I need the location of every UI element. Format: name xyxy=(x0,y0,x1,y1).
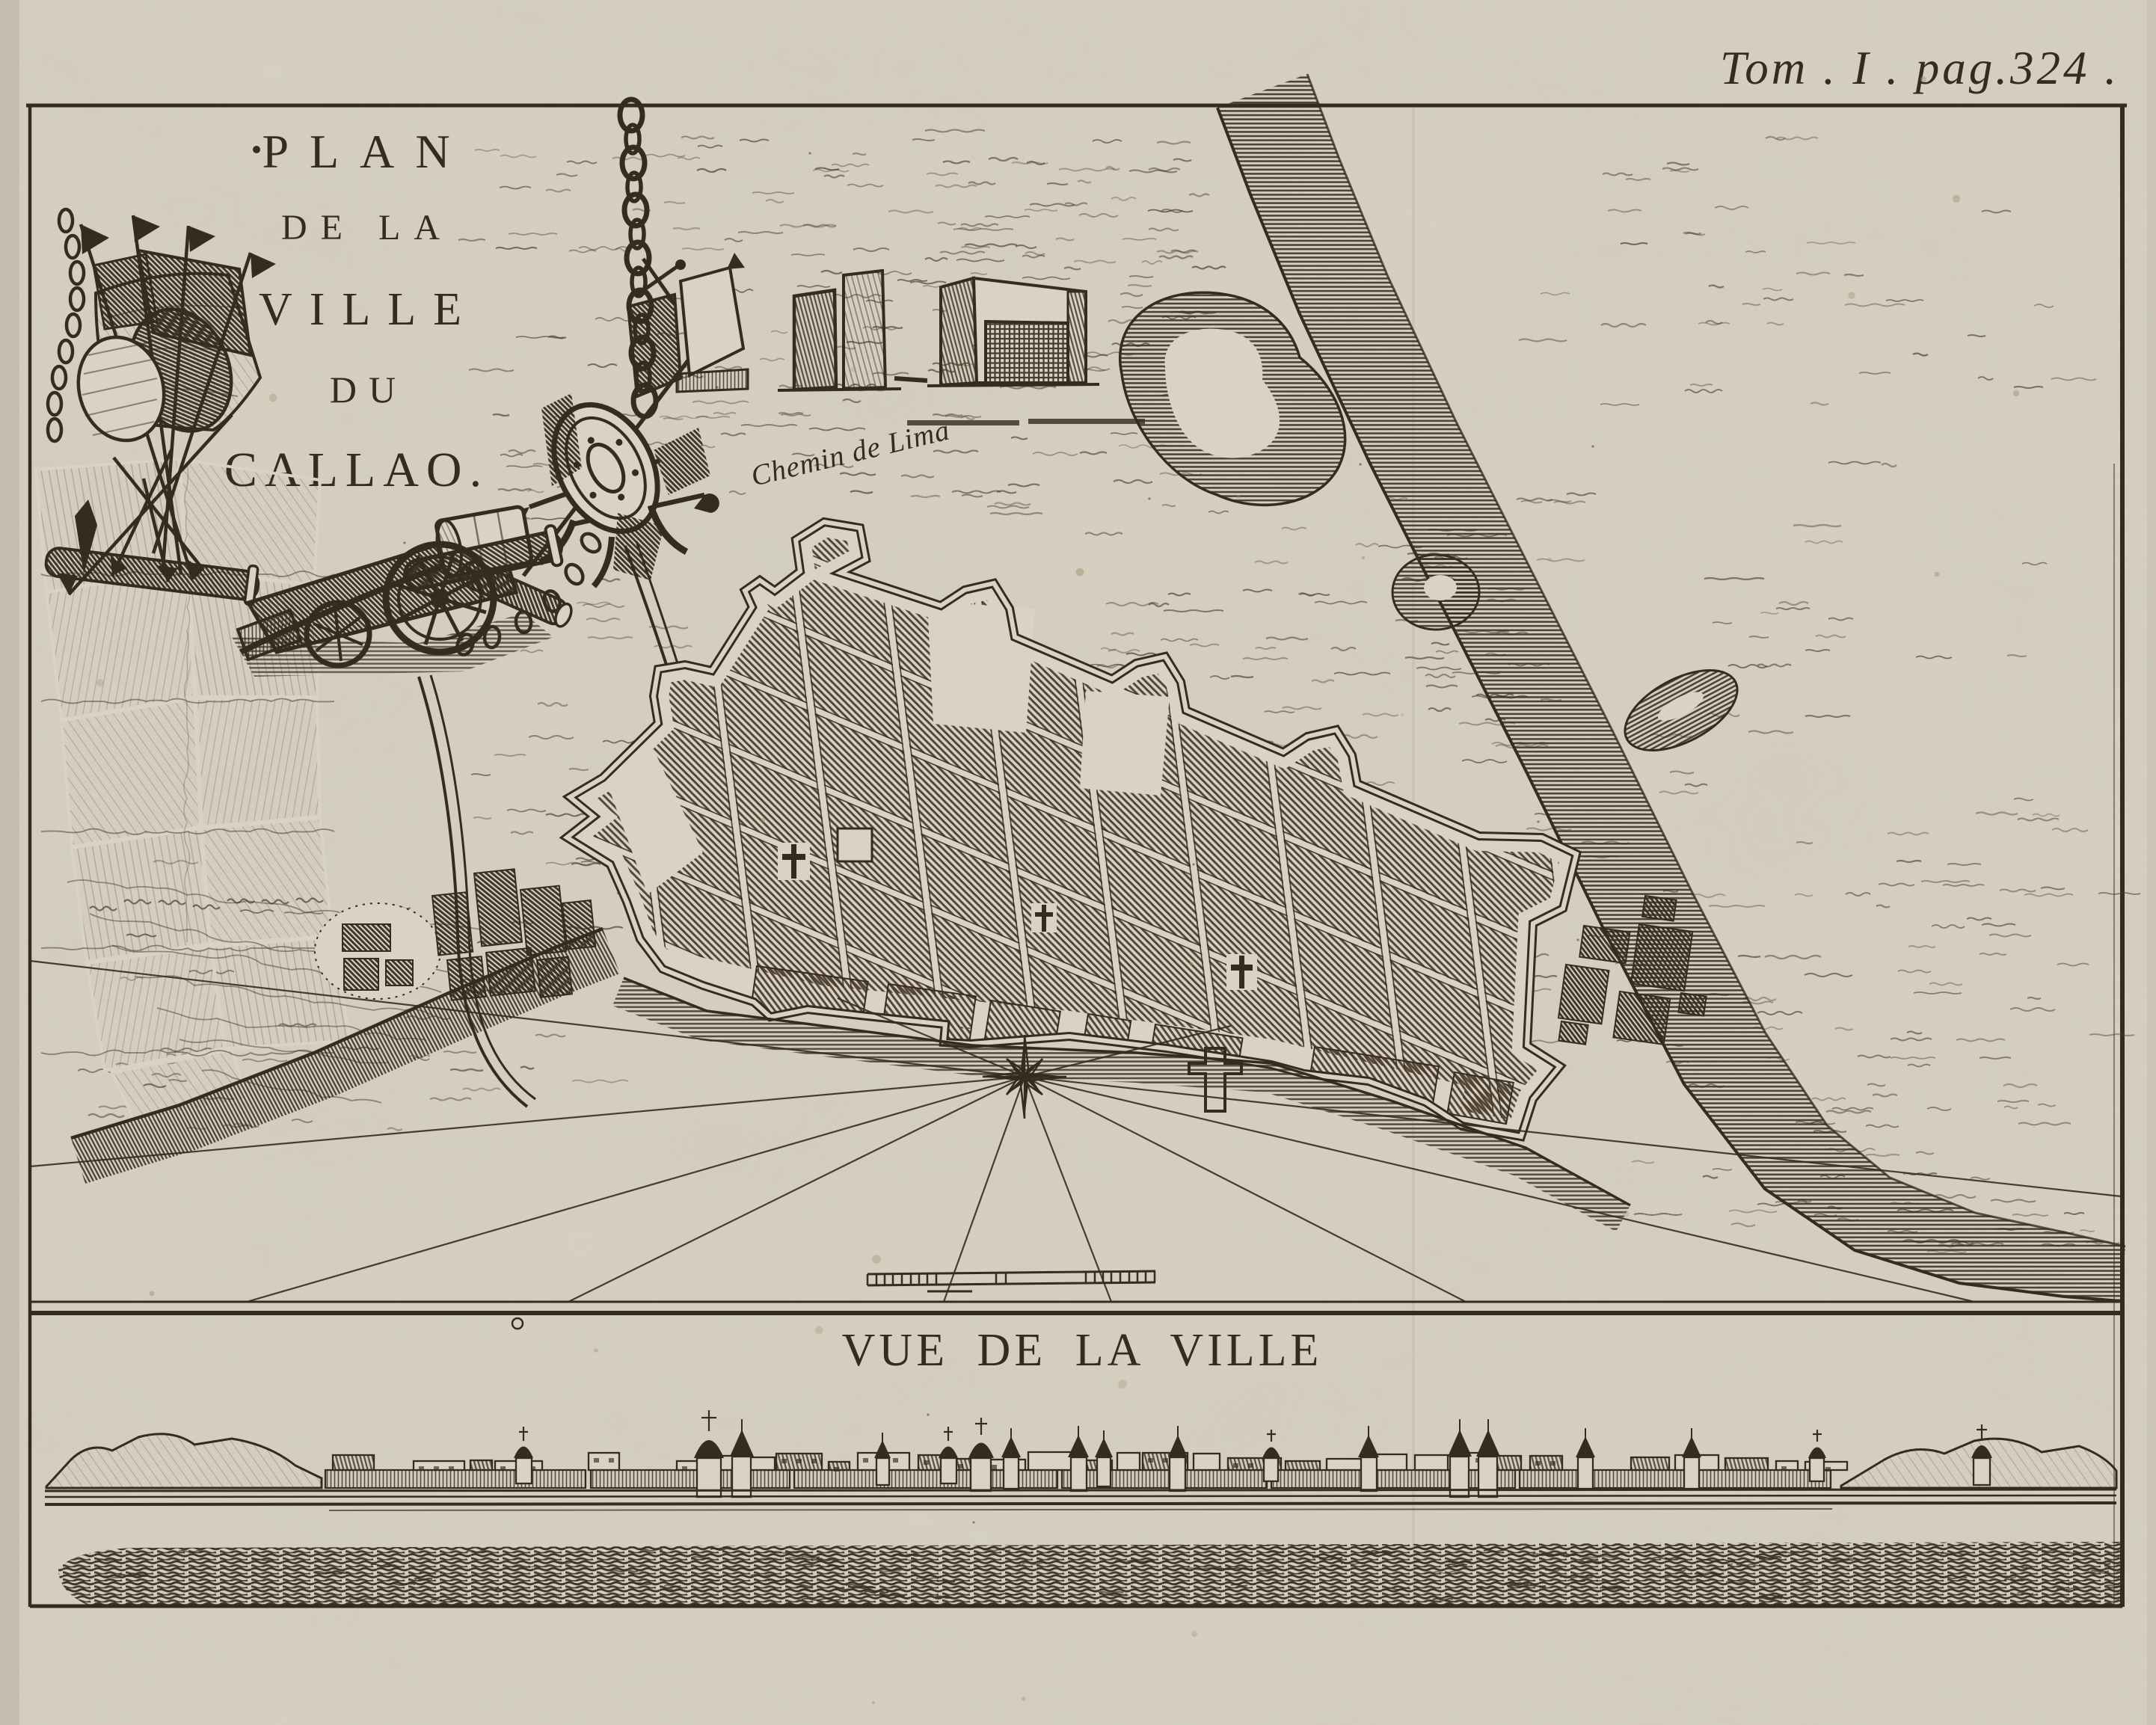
svg-text:VILLE: VILLE xyxy=(259,284,479,335)
svg-text:Tom . I . pag.324 .: Tom . I . pag.324 . xyxy=(1720,42,2119,94)
svg-text:DU: DU xyxy=(330,369,408,411)
svg-text:VUE DE LA VILLE: VUE DE LA VILLE xyxy=(842,1325,1323,1376)
svg-text:DE LA: DE LA xyxy=(281,208,453,247)
svg-text:PLAN: PLAN xyxy=(262,125,470,178)
